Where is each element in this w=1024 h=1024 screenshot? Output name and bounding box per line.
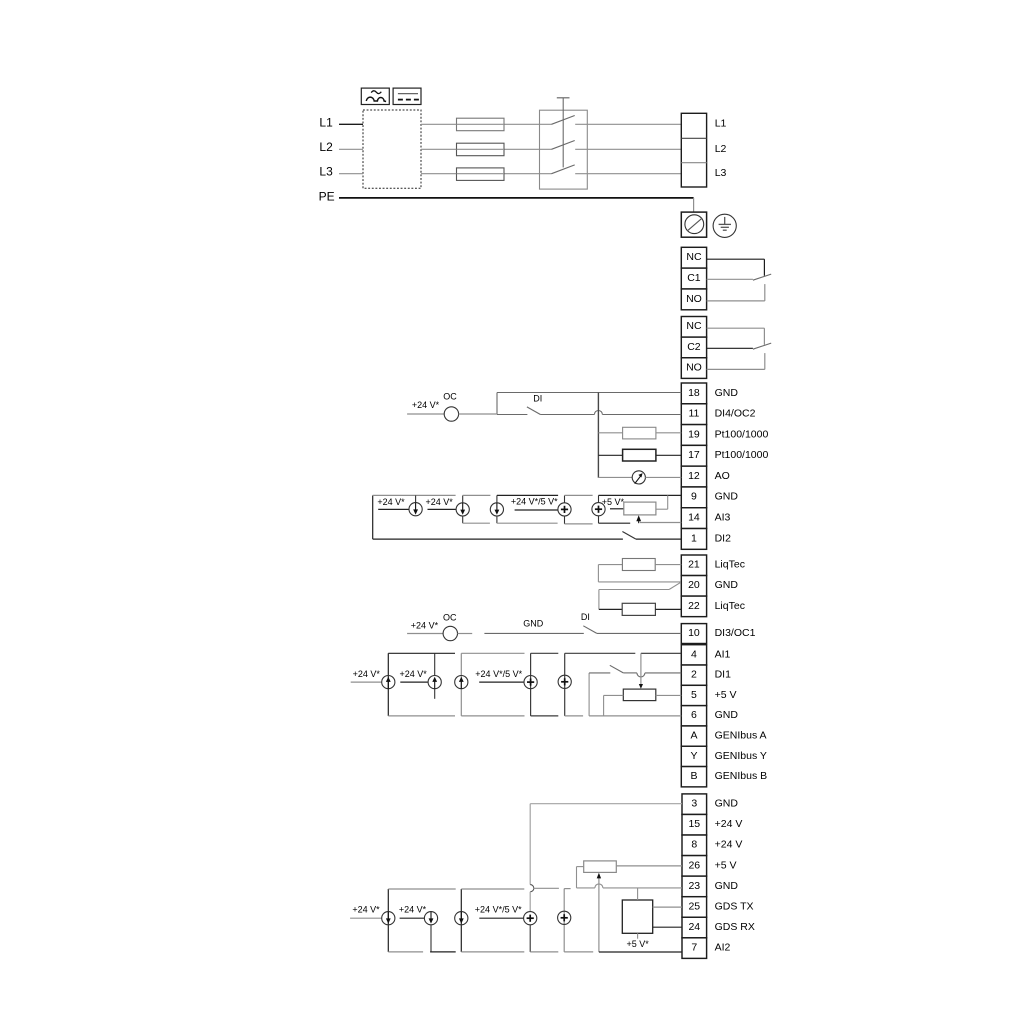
svg-text:AI3: AI3 xyxy=(715,512,731,524)
svg-text:11: 11 xyxy=(688,408,699,420)
svg-text:DI4/OC2: DI4/OC2 xyxy=(715,408,756,420)
svg-text:+24 V*: +24 V* xyxy=(353,669,381,679)
svg-text:GND: GND xyxy=(715,798,739,810)
svg-text:+24 V*: +24 V* xyxy=(426,497,454,507)
svg-text:GENIbus Y: GENIbus Y xyxy=(715,750,767,762)
svg-text:+24 V*/5 V*: +24 V*/5 V* xyxy=(511,497,558,507)
svg-text:L2: L2 xyxy=(319,140,333,154)
svg-text:B: B xyxy=(690,770,697,782)
svg-text:+5 V: +5 V xyxy=(715,689,737,701)
svg-text:+5 V: +5 V xyxy=(715,859,737,871)
svg-text:GND: GND xyxy=(715,880,739,892)
svg-text:+24 V*: +24 V* xyxy=(412,400,440,410)
svg-text:22: 22 xyxy=(688,600,700,612)
svg-text:+24 V*: +24 V* xyxy=(377,497,405,507)
svg-text:8: 8 xyxy=(691,839,697,851)
svg-text:24: 24 xyxy=(688,921,700,933)
svg-text:Pt100/1000: Pt100/1000 xyxy=(715,428,769,440)
svg-text:L1: L1 xyxy=(715,118,727,130)
svg-text:17: 17 xyxy=(688,449,700,461)
svg-text:+24 V*/5 V*: +24 V*/5 V* xyxy=(475,905,522,915)
svg-text:+5 V*: +5 V* xyxy=(627,939,650,949)
svg-text:+24 V*: +24 V* xyxy=(400,669,428,679)
svg-text:GDS TX: GDS TX xyxy=(715,900,754,912)
svg-text:NO: NO xyxy=(686,361,702,373)
svg-text:C2: C2 xyxy=(687,341,701,353)
svg-text:4: 4 xyxy=(691,648,697,660)
svg-text:18: 18 xyxy=(688,387,700,399)
svg-text:2: 2 xyxy=(691,669,697,681)
svg-text:15: 15 xyxy=(688,818,700,830)
svg-text:1: 1 xyxy=(691,532,697,544)
svg-text:DI3/OC1: DI3/OC1 xyxy=(715,627,756,639)
svg-text:+24 V: +24 V xyxy=(715,818,743,830)
svg-text:GND: GND xyxy=(715,491,739,503)
svg-text:Pt100/1000: Pt100/1000 xyxy=(715,449,769,461)
svg-text:L1: L1 xyxy=(319,115,333,129)
svg-text:AI2: AI2 xyxy=(715,942,731,954)
svg-text:12: 12 xyxy=(688,470,700,482)
svg-text:L3: L3 xyxy=(715,167,727,179)
svg-text:DI: DI xyxy=(533,394,542,404)
svg-text:PE: PE xyxy=(319,190,335,204)
svg-text:GND: GND xyxy=(715,387,739,399)
svg-text:10: 10 xyxy=(688,627,700,639)
svg-text:14: 14 xyxy=(688,512,700,524)
svg-text:GDS RX: GDS RX xyxy=(715,921,755,933)
svg-text:25: 25 xyxy=(688,900,700,912)
svg-text:9: 9 xyxy=(691,491,697,503)
svg-text:GENIbus B: GENIbus B xyxy=(715,770,768,782)
svg-text:GND: GND xyxy=(715,709,739,721)
svg-text:A: A xyxy=(690,729,697,741)
svg-text:LiqTec: LiqTec xyxy=(715,559,745,571)
svg-text:6: 6 xyxy=(691,709,697,721)
svg-text:GND: GND xyxy=(715,579,739,591)
svg-text:Y: Y xyxy=(690,750,697,762)
svg-text:AO: AO xyxy=(715,470,730,482)
svg-text:DI1: DI1 xyxy=(715,669,732,681)
svg-text:DI2: DI2 xyxy=(715,532,732,544)
svg-text:DI: DI xyxy=(581,612,590,622)
svg-text:L2: L2 xyxy=(715,143,727,155)
svg-text:5: 5 xyxy=(691,689,697,701)
svg-text:NO: NO xyxy=(686,293,702,305)
svg-text:+24 V*/5 V*: +24 V*/5 V* xyxy=(475,669,522,679)
svg-text:GND: GND xyxy=(523,619,544,629)
svg-text:OC: OC xyxy=(443,612,457,622)
svg-text:+24 V*: +24 V* xyxy=(399,905,427,915)
svg-text:OC: OC xyxy=(443,392,457,402)
svg-text:26: 26 xyxy=(688,859,700,871)
svg-text:LiqTec: LiqTec xyxy=(715,600,745,612)
svg-text:+24 V*: +24 V* xyxy=(352,905,380,915)
svg-text:+24 V*: +24 V* xyxy=(411,621,439,631)
svg-text:3: 3 xyxy=(691,798,697,810)
svg-text:+5 V*: +5 V* xyxy=(602,497,625,507)
svg-text:NC: NC xyxy=(686,320,702,332)
svg-text:20: 20 xyxy=(688,579,700,591)
svg-text:GENIbus A: GENIbus A xyxy=(715,729,767,741)
svg-text:AI1: AI1 xyxy=(715,648,731,660)
svg-text:7: 7 xyxy=(691,942,697,954)
svg-text:19: 19 xyxy=(688,428,700,440)
svg-text:21: 21 xyxy=(688,559,700,571)
svg-text:23: 23 xyxy=(688,880,700,892)
svg-text:L3: L3 xyxy=(319,164,333,178)
svg-text:NC: NC xyxy=(686,251,702,263)
svg-text:C1: C1 xyxy=(687,272,701,284)
svg-text:+24 V: +24 V xyxy=(715,839,743,851)
